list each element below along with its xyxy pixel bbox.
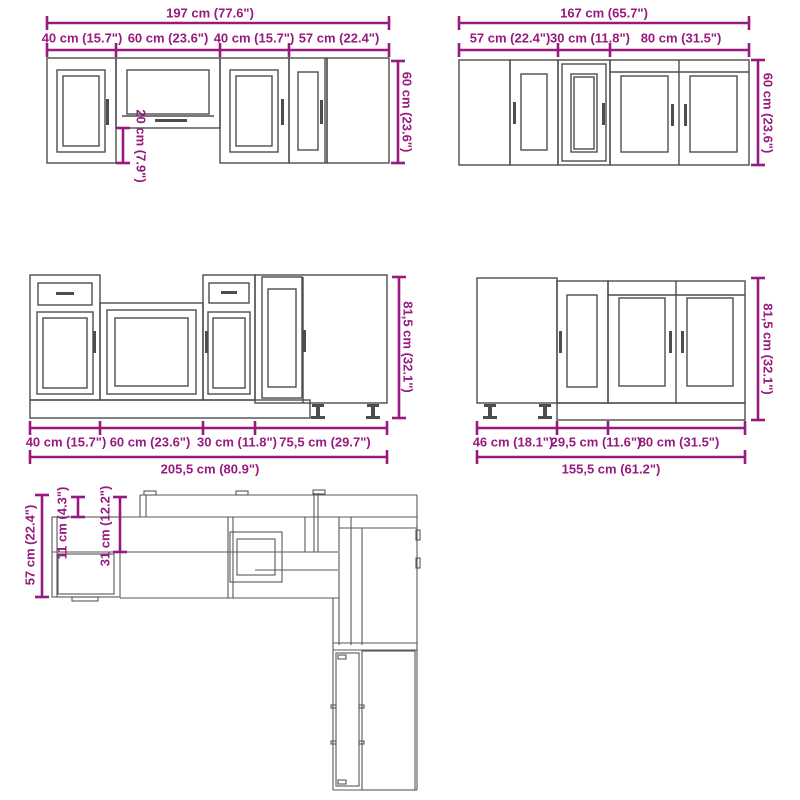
plan-view-drawing — [52, 490, 420, 790]
wall-run-right-drawing — [459, 60, 749, 165]
base-run-right-drawing — [477, 278, 745, 420]
diagram-canvas — [0, 0, 800, 800]
kitchen-cabinet-dimension-diagram: 197 cm (77.6") 40 cm (15.7") 60 cm (23.6… — [0, 0, 800, 800]
wall-run-left-drawing — [47, 58, 389, 163]
wall-run-right-dimension-lines — [459, 16, 765, 165]
wall-run-left-dimension-lines — [47, 16, 405, 163]
base-run-right-dimension-lines — [477, 278, 765, 464]
plan-view-dimension-lines — [35, 495, 127, 597]
base-run-left-drawing — [30, 275, 387, 419]
